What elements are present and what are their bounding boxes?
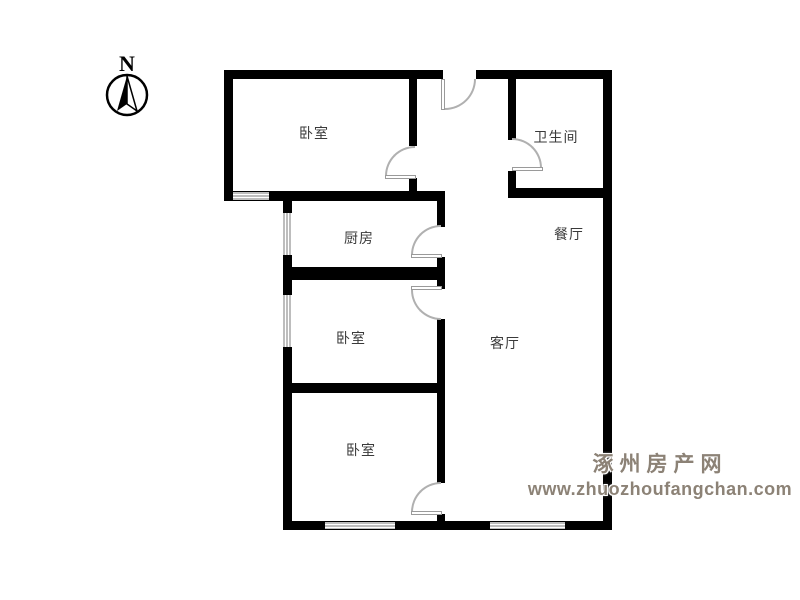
wall	[224, 70, 233, 201]
door-leaf	[411, 511, 442, 515]
wall	[283, 383, 445, 393]
wall	[283, 267, 445, 280]
door-leaf	[512, 167, 543, 171]
wall	[508, 79, 516, 140]
room-label-bedroom-middle: 卧室	[336, 328, 366, 348]
watermark: 涿州房产网 www.zhuozhoufangchan.com	[513, 452, 800, 501]
door-leaf	[411, 254, 442, 258]
door-leaf	[385, 175, 416, 179]
wall	[508, 188, 612, 198]
room-label-bedroom-bottom: 卧室	[346, 440, 376, 460]
door-swing-arc	[411, 290, 441, 320]
window	[233, 192, 269, 200]
wall	[409, 79, 417, 146]
door-swing-arc	[445, 79, 476, 110]
room-label-living-room: 客厅	[490, 333, 520, 353]
room-label-bedroom-top: 卧室	[299, 123, 329, 143]
window	[490, 522, 565, 529]
wall	[437, 514, 445, 530]
wall	[437, 319, 445, 483]
room-label-bathroom: 卫生间	[534, 127, 579, 147]
watermark-site-name: 涿州房产网	[513, 452, 800, 478]
wall	[224, 70, 443, 79]
wall	[437, 198, 445, 227]
door-swing-arc	[411, 482, 441, 512]
room-label-dining-room: 餐厅	[554, 224, 584, 244]
window	[283, 295, 292, 347]
wall	[508, 171, 516, 198]
door-swing-arc	[385, 146, 415, 176]
floorplan: 卧室 卫生间 厨房 餐厅 卧室 客厅 卧室 N 涿州房产网 www.zhuozh…	[0, 0, 800, 600]
compass: N	[100, 48, 154, 120]
window	[283, 213, 292, 255]
compass-north-label: N	[119, 51, 135, 76]
wall	[437, 257, 445, 289]
room-label-kitchen: 厨房	[344, 228, 374, 248]
watermark-url: www.zhuozhoufangchan.com	[513, 478, 800, 501]
door-swing-arc	[411, 225, 441, 255]
north-arrow-icon	[117, 76, 137, 111]
wall	[409, 178, 417, 201]
window	[325, 522, 395, 529]
wall	[476, 70, 612, 79]
